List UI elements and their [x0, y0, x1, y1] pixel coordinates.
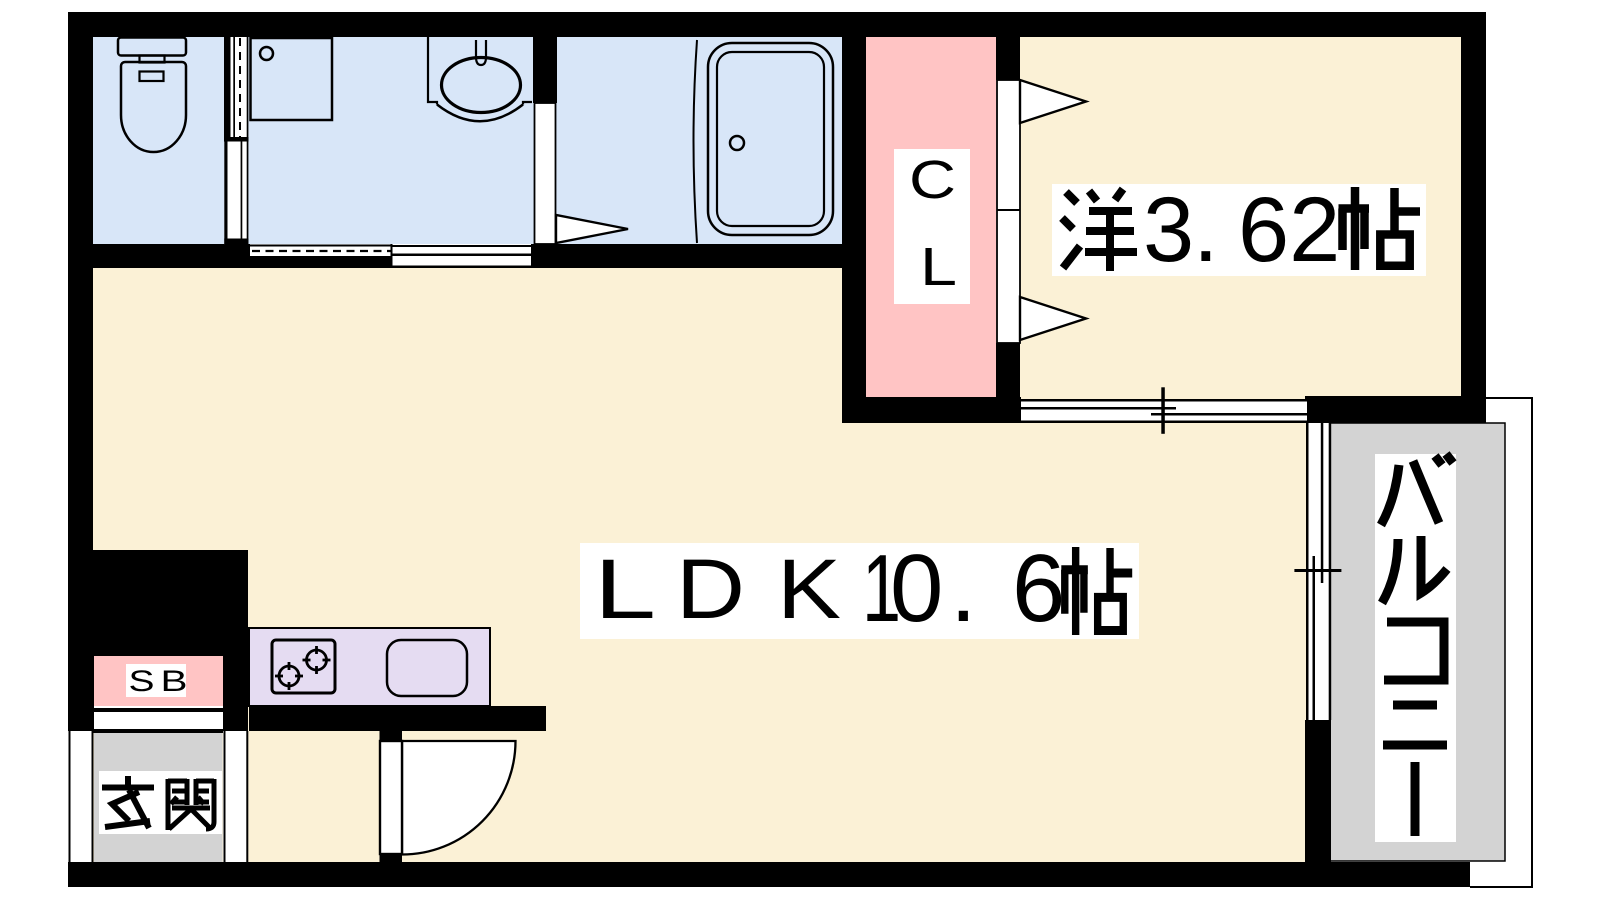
svg-text:S: S — [129, 665, 155, 698]
svg-text:L: L — [920, 237, 957, 297]
svg-text:0: 0 — [890, 535, 943, 642]
svg-text:6: 6 — [1012, 535, 1065, 642]
svg-text:62: 62 — [1238, 179, 1340, 281]
svg-text:C: C — [909, 150, 956, 210]
svg-text:L: L — [594, 542, 656, 636]
svg-text:D: D — [676, 542, 745, 636]
svg-text:K: K — [777, 542, 841, 636]
svg-text:.: . — [950, 535, 977, 642]
svg-text:3: 3 — [1143, 179, 1194, 281]
svg-text:B: B — [161, 665, 188, 698]
svg-text:.: . — [1193, 179, 1219, 281]
